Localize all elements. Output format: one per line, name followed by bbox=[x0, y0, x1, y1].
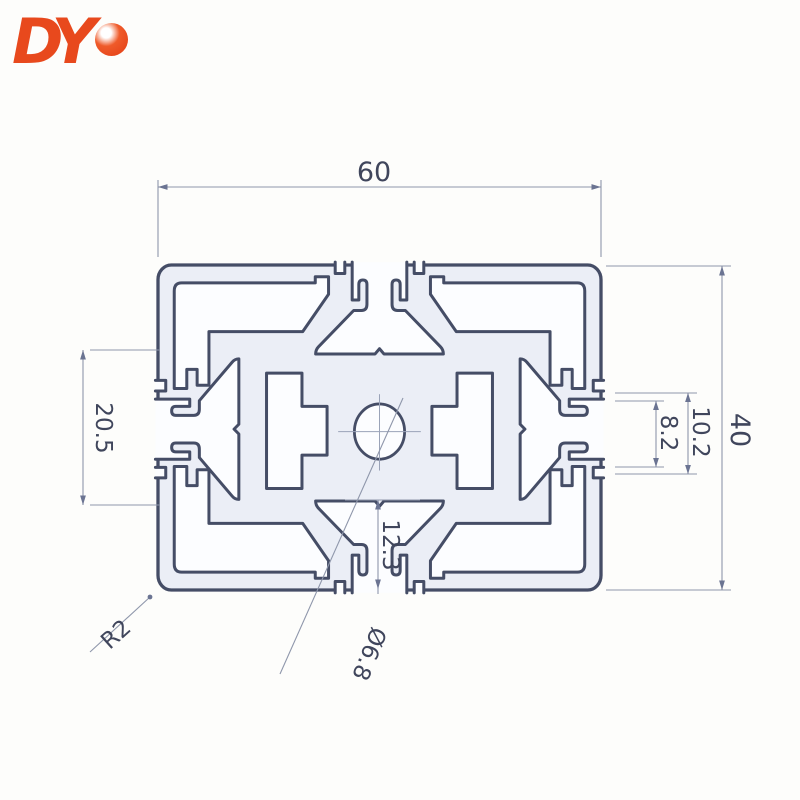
dim-left-slot-label: 20.5 bbox=[90, 402, 116, 453]
dim-slot-inner: 8.2 bbox=[615, 401, 681, 467]
page: { "logo": { "text": "DY", "color": "#e84… bbox=[0, 0, 800, 800]
dim-width-label: 60 bbox=[357, 157, 391, 188]
face-step-notch bbox=[414, 262, 424, 273]
dim-left-slot: 20.5 bbox=[80, 350, 160, 505]
dim-width: 60 bbox=[158, 157, 601, 257]
leader-dot bbox=[148, 595, 153, 600]
dim-height-label: 40 bbox=[724, 413, 755, 447]
dim-slot-outer-label: 10.2 bbox=[687, 406, 713, 457]
dim-bottom-depth-label: 12.3 bbox=[377, 519, 403, 570]
callout-corner-radius: R2 bbox=[90, 595, 152, 655]
dim-slot-inner-label: 8.2 bbox=[655, 415, 681, 452]
center-hole-label: Ø6.8 bbox=[346, 623, 391, 683]
technical-drawing: 60 40 20.5 10.2 8.2 12.3 R2 bbox=[0, 0, 800, 800]
face-step-notch bbox=[335, 262, 345, 273]
corner-radius-label: R2 bbox=[96, 615, 136, 655]
